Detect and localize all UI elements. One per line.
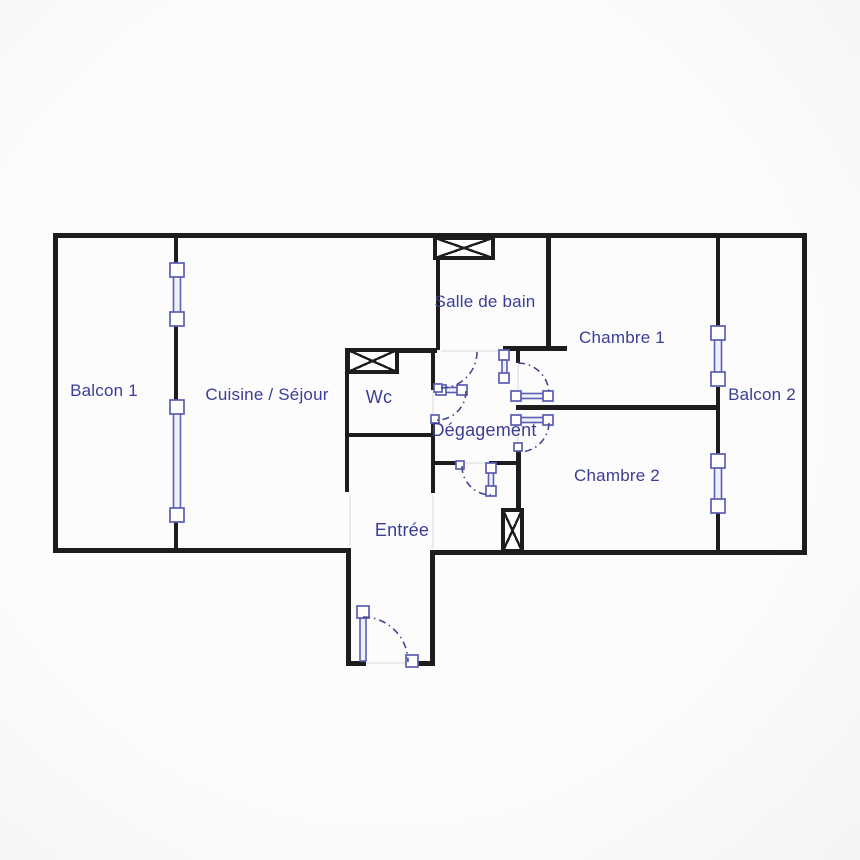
room-label-entree: Entrée	[375, 520, 429, 540]
wall-left	[53, 233, 58, 553]
bathroom-door-arc	[441, 352, 477, 388]
room-label-degagement: Dégagement	[431, 420, 536, 440]
wall-segment	[716, 513, 720, 553]
hallway-door-leaf	[486, 463, 496, 496]
bedroom-1-door-arc	[518, 363, 549, 392]
wall-segment	[546, 238, 551, 348]
wall-segment	[345, 433, 435, 437]
wall-segment	[716, 233, 720, 327]
wall-segment	[174, 326, 178, 401]
balcony-2-window-upper	[711, 326, 725, 386]
wall-right	[802, 233, 807, 555]
wall-top	[53, 233, 807, 238]
room-label-balcon-1: Balcon 1	[70, 381, 138, 400]
room-label-salle-de-bain: Salle de bain	[435, 292, 536, 311]
bathroom-door-leaf	[499, 350, 509, 383]
wall-segment	[174, 522, 178, 550]
room-label-wc: Wc	[366, 387, 392, 407]
room-label-balcon-2: Balcon 2	[728, 385, 796, 404]
bedroom-1-door-leaf	[511, 391, 553, 401]
wall-bottom-right	[430, 550, 807, 555]
room-label-chambre-1: Chambre 1	[579, 328, 665, 347]
entry-corridor-wall-left	[346, 548, 351, 666]
front-door-leaf	[357, 606, 418, 667]
bedroom-divider-wall	[516, 405, 718, 410]
wall-segment	[716, 387, 720, 455]
room-label-chambre-2: Chambre 2	[574, 466, 660, 485]
outer-walls	[53, 233, 807, 666]
duct-box-bathroom	[435, 238, 493, 258]
floor-plan: Balcon 1 Cuisine / Séjour Wc Salle de ba…	[0, 0, 860, 860]
wall-bottom-left	[53, 548, 351, 553]
entry-corridor-wall-right	[430, 550, 435, 666]
balcony-2-window-lower	[711, 454, 725, 513]
wall-segment	[516, 350, 520, 363]
balcony-1-window-lower	[170, 400, 184, 522]
duct-box-wc	[348, 350, 397, 372]
room-label-cuisine-sejour: Cuisine / Séjour	[205, 385, 328, 404]
wall-segment	[174, 233, 178, 264]
balcony-1-window-upper	[170, 263, 184, 326]
wall-segment	[516, 448, 521, 512]
front-door-arc	[363, 617, 408, 662]
wall-segment	[503, 346, 567, 351]
bedroom-walls	[516, 350, 718, 512]
duct-box-entry	[503, 510, 522, 551]
